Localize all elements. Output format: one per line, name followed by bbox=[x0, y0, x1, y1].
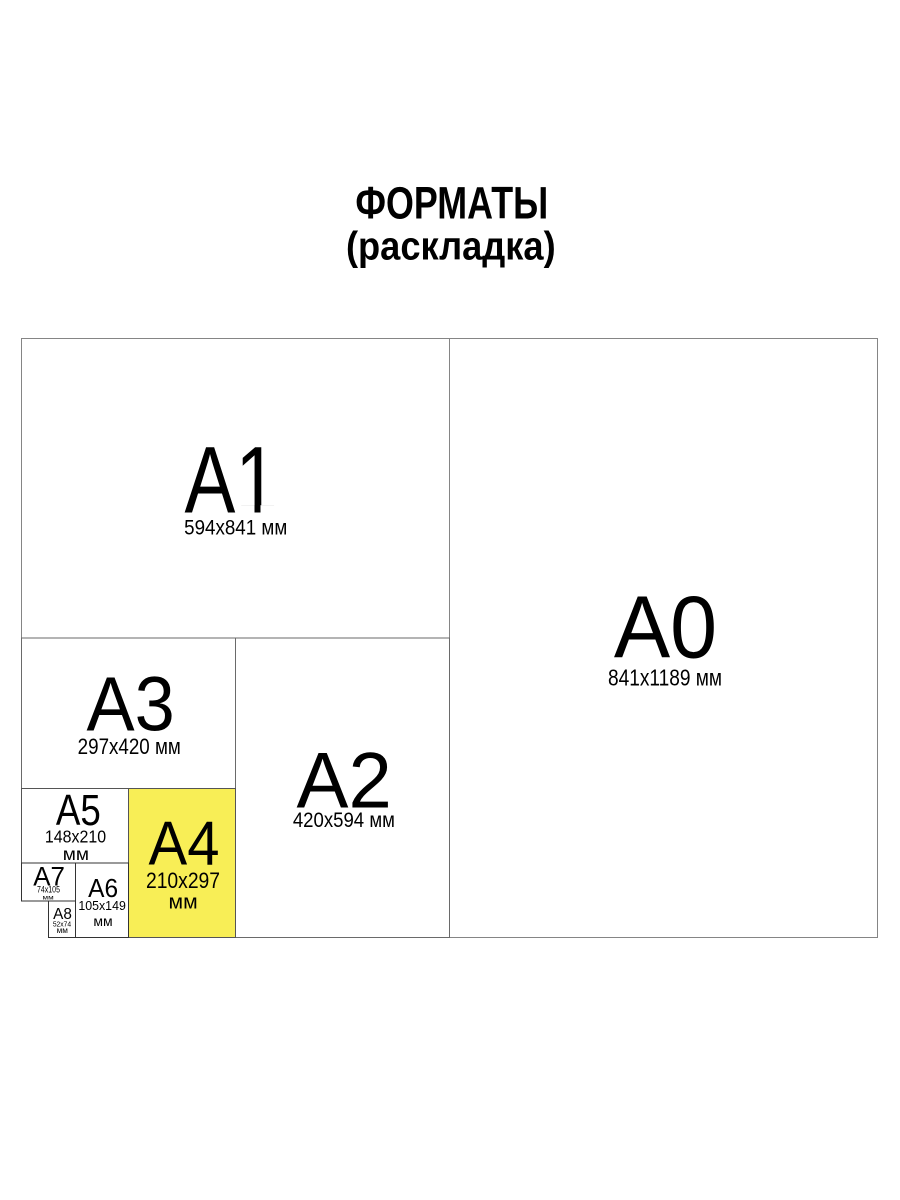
svg-text:мм: мм bbox=[43, 894, 55, 901]
svg-text:420x594 мм: 420x594 мм bbox=[293, 807, 395, 832]
svg-text:74x105: 74x105 bbox=[37, 884, 60, 894]
svg-text:мм: мм bbox=[63, 844, 89, 864]
svg-text:(раскладка): (раскладка) bbox=[346, 223, 556, 268]
svg-text:841x1189 мм: 841x1189 мм bbox=[608, 664, 722, 690]
svg-text:A0: A0 bbox=[614, 578, 717, 677]
svg-text:A8: A8 bbox=[53, 906, 72, 923]
svg-text:297x420 мм: 297x420 мм bbox=[78, 734, 181, 759]
svg-text:105x149: 105x149 bbox=[78, 899, 126, 913]
svg-text:594x841 мм: 594x841 мм bbox=[184, 517, 287, 540]
svg-text:210x297: 210x297 bbox=[146, 868, 220, 893]
svg-text:мм: мм bbox=[57, 926, 68, 935]
svg-text:мм: мм bbox=[93, 914, 112, 929]
svg-text:ФОРМАТЫ: ФОРМАТЫ bbox=[355, 178, 548, 229]
svg-text:мм: мм bbox=[169, 891, 198, 913]
